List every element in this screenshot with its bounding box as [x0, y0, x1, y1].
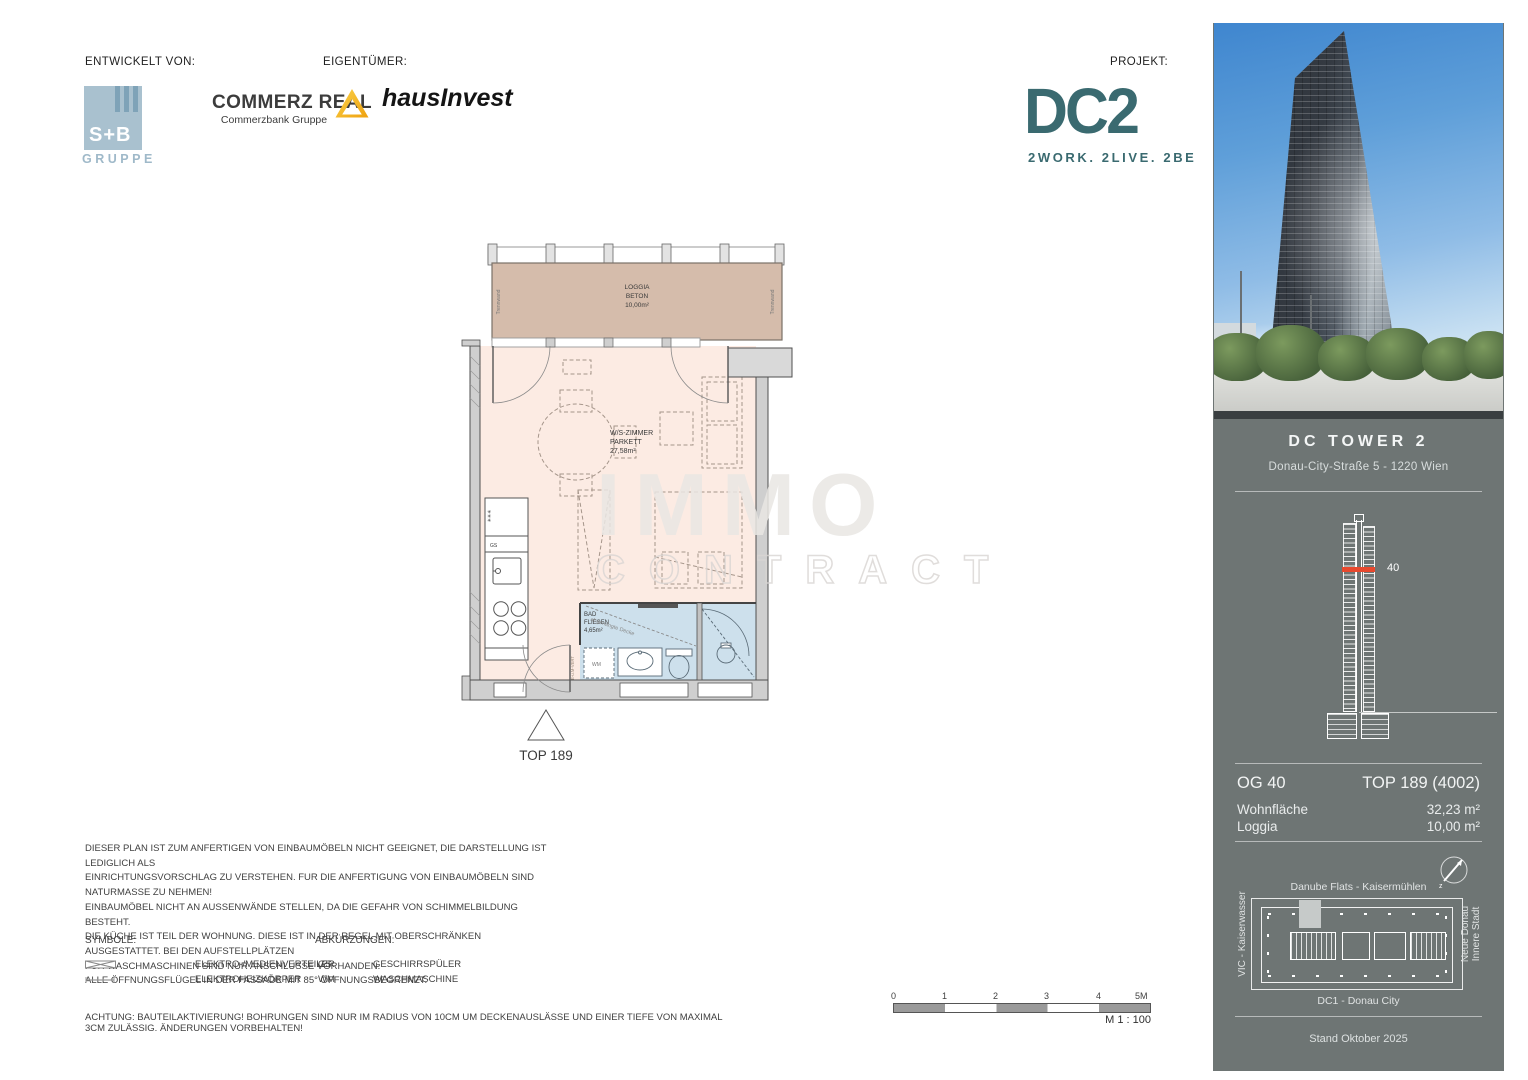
divider [1235, 491, 1482, 492]
scale-tick: 1 [942, 991, 947, 1001]
shower-partition [697, 603, 702, 680]
sb-gruppe-logo: S+B [84, 86, 142, 150]
abbr-label: WASCHMASCHINE [373, 974, 458, 985]
scale-tick: 5M [1135, 991, 1148, 1001]
symbol-label: ELEKTRO-/MEDIENVERTEILER [195, 959, 335, 970]
room-surface: PARKETT [610, 439, 642, 446]
revision-date: Stand Oktober 2025 [1213, 1033, 1504, 1045]
scale-tick: 3 [1044, 991, 1049, 1001]
siteplan-core [1410, 932, 1446, 960]
siteplan-left-label: VIC - Kaiserwasser [1237, 874, 1249, 994]
siteplan-columns [1268, 913, 1444, 915]
electro-radiator-icon [85, 976, 117, 984]
living-area-value: 32,23 m² [1427, 802, 1480, 817]
bath-area-value: 4,65m² [584, 628, 603, 634]
dishwasher-label: GS [490, 543, 498, 549]
divider [1235, 841, 1482, 842]
unit-top-number: TOP 189 (4002) [1362, 774, 1480, 793]
dc2-tagline: 2WORK. 2LIVE. 2BE [1028, 150, 1196, 165]
bath-shelf [638, 604, 678, 608]
siteplan-right-label: Neue Donau Innere Stadt [1460, 874, 1484, 994]
warning-text: ACHTUNG: BAUTEILAKTIVIERUNG! BOHRUNGEN S… [85, 1012, 725, 1034]
developed-by-label: ENTWICKELT VON: [85, 56, 195, 68]
schematic-base-core [1356, 713, 1362, 739]
siteplan-core [1342, 932, 1370, 960]
sidebar: DC TOWER 2 Donau-City-Straße 5 - 1220 Wi… [1213, 23, 1504, 1071]
commerzbank-gruppe-label: Commerzbank Gruppe [216, 114, 332, 126]
abbreviations-title: ABKÜRZUNGEN: [315, 935, 394, 946]
owner-label: EIGENTÜMER: [323, 56, 407, 68]
sb-logo-bar [133, 86, 138, 112]
schematic-roof [1354, 514, 1364, 522]
loggia-area-value: 10,00m² [625, 302, 650, 309]
electro-distributor-icon [85, 960, 117, 970]
schematic-core [1356, 520, 1362, 712]
unit-info-row: OG 40 TOP 189 (4002) [1237, 774, 1480, 793]
floor-highlight-band [1342, 567, 1375, 572]
sidebar-address: Donau-City-Straße 5 - 1220 Wien [1213, 461, 1504, 473]
structural-block [728, 348, 792, 377]
symbols-title: SYMBOLE: [85, 935, 136, 946]
plan-sheet: ENTWICKELT VON: EIGENTÜMER: PROJEKT: S+B… [0, 0, 1528, 1080]
scale-tick: 2 [993, 991, 998, 1001]
right-wall [756, 377, 768, 680]
schematic-left-wing [1343, 523, 1356, 712]
scale-label: M 1 : 100 [1105, 1014, 1151, 1026]
tower-elevation-schematic: 40 [1343, 523, 1375, 738]
sb-logo-text: S+B [89, 124, 131, 147]
unit-floor: OG 40 [1237, 774, 1286, 793]
wall-niche [494, 683, 526, 697]
e-vert-label: E-u.M-VERT [570, 656, 575, 680]
photo-plaza-edge [1214, 411, 1503, 419]
photo-tree [1256, 325, 1326, 381]
hausinvest-logo-text: hausInvest [382, 84, 513, 113]
photo-tree [1464, 331, 1503, 379]
scale-bar: 0 1 2 3 4 5M M 1 : 100 [893, 991, 1151, 1025]
trennwand-label-right: Trennwand [770, 289, 776, 314]
scale-tick: 0 [891, 991, 896, 1001]
sb-logo-bar [124, 86, 129, 112]
unit-info-row: Loggia 10,00 m² [1237, 819, 1480, 834]
loggia-area-label: Loggia [1237, 819, 1278, 834]
trennwand-label-left: Trennwand [496, 289, 502, 314]
project-label: PROJEKT: [1110, 56, 1168, 68]
fridge-symbol: ✳✳✳ [487, 510, 493, 523]
room-area-value: 27,58m² [610, 448, 636, 455]
unit-info-row: Wohnfläche 32,23 m² [1237, 802, 1480, 817]
scale-bar-graphic [893, 1003, 1151, 1013]
dc2-logo-text: DC2 [1024, 74, 1137, 148]
divider [1235, 763, 1482, 764]
divider [1235, 1016, 1482, 1017]
sb-gruppe-label: GRUPPE [82, 152, 156, 166]
loggia-name: LOGGIA [625, 284, 651, 291]
siteplan [1251, 898, 1463, 990]
loggia-surface: BETON [626, 293, 649, 300]
entrance-triangle-icon [528, 710, 564, 740]
siteplan-core [1290, 932, 1336, 960]
loggia-area-value: 10,00 m² [1427, 819, 1480, 834]
wall-niche [620, 683, 688, 697]
living-area-label: Wohnfläche [1237, 802, 1308, 817]
unit-marker: TOP 189 [519, 710, 573, 763]
unit-label: TOP 189 [519, 748, 573, 763]
washing-machine-label: WM [592, 662, 601, 668]
abbr-key: GS [318, 959, 332, 970]
schematic-right-wing [1363, 526, 1375, 712]
floor-marker-label: 40 [1387, 562, 1399, 574]
siteplan-columns [1268, 975, 1444, 977]
floorplan-drawing: LOGGIA BETON 10,00m² Trennwand Trennwand… [460, 240, 880, 770]
room-name: W/S-ZIMMER [610, 430, 653, 437]
commerzbank-triangle-icon [333, 86, 371, 124]
abbr-label: GESCHIRRSPÜLER [373, 959, 461, 970]
siteplan-columns [1267, 916, 1269, 974]
abbr-key: WM [318, 974, 335, 985]
siteplan-unit-highlight [1299, 900, 1321, 928]
scale-tick: 4 [1096, 991, 1101, 1001]
symbol-label: ELEKTROHEIZKÖRPER [195, 974, 301, 985]
sb-logo-bar [115, 86, 120, 112]
wall-niche [698, 683, 752, 697]
siteplan-bottom-label: DC1 - Donau City [1213, 995, 1504, 1007]
photo-tree [1366, 328, 1430, 380]
kitchen-sink [493, 558, 521, 584]
tower-photo [1214, 23, 1503, 419]
floorplan: LOGGIA BETON 10,00m² Trennwand Trennwand… [460, 240, 880, 770]
siteplan-core [1374, 932, 1406, 960]
siteplan-footprint [1261, 907, 1453, 983]
sidebar-title: DC TOWER 2 [1213, 433, 1504, 451]
